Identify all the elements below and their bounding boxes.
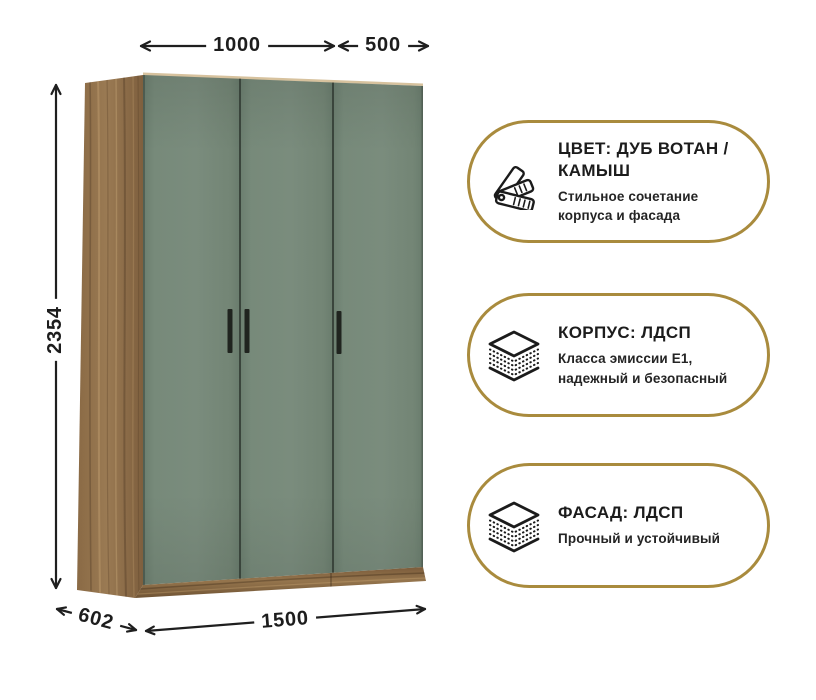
- door-handle: [245, 309, 250, 353]
- product-infographic: 1000 500 2354 602 1500 ЦВЕТ: ДУБ ВОТАН /…: [0, 0, 816, 700]
- feature-badge-body: КОРПУС: ЛДСП Класса эмиссии Е1, надежный…: [467, 293, 770, 417]
- color-swatches-icon: [470, 154, 558, 210]
- dimension-label-total-width: 1500: [253, 608, 316, 633]
- wardrobe-side-panel: [77, 75, 143, 598]
- feature-badge-color: ЦВЕТ: ДУБ ВОТАН / КАМЫШ Стильное сочетан…: [467, 120, 770, 243]
- door-handle: [337, 311, 342, 354]
- badge-title: ЦВЕТ: ДУБ ВОТАН / КАМЫШ: [558, 138, 751, 182]
- badge-title: ФАСАД: ЛДСП: [558, 502, 751, 524]
- badge-subtitle: Прочный и устойчивый: [558, 529, 730, 548]
- layered-board-icon: [470, 498, 558, 554]
- badge-subtitle: Класса эмиссии Е1, надежный и безопасный: [558, 349, 730, 387]
- feature-badge-facade: ФАСАД: ЛДСП Прочный и устойчивый: [467, 463, 770, 588]
- dimension-label-door-single-width: 500: [358, 35, 408, 55]
- wardrobe-doors: [143, 75, 423, 585]
- badge-title: КОРПУС: ЛДСП: [558, 322, 751, 344]
- dimension-label-height: 2354: [45, 299, 65, 361]
- door-handle: [228, 309, 233, 353]
- dimension-label-door-pair-width: 1000: [206, 35, 268, 55]
- badge-subtitle: Стильное сочетание корпуса и фасада: [558, 187, 730, 225]
- layered-board-icon: [470, 327, 558, 383]
